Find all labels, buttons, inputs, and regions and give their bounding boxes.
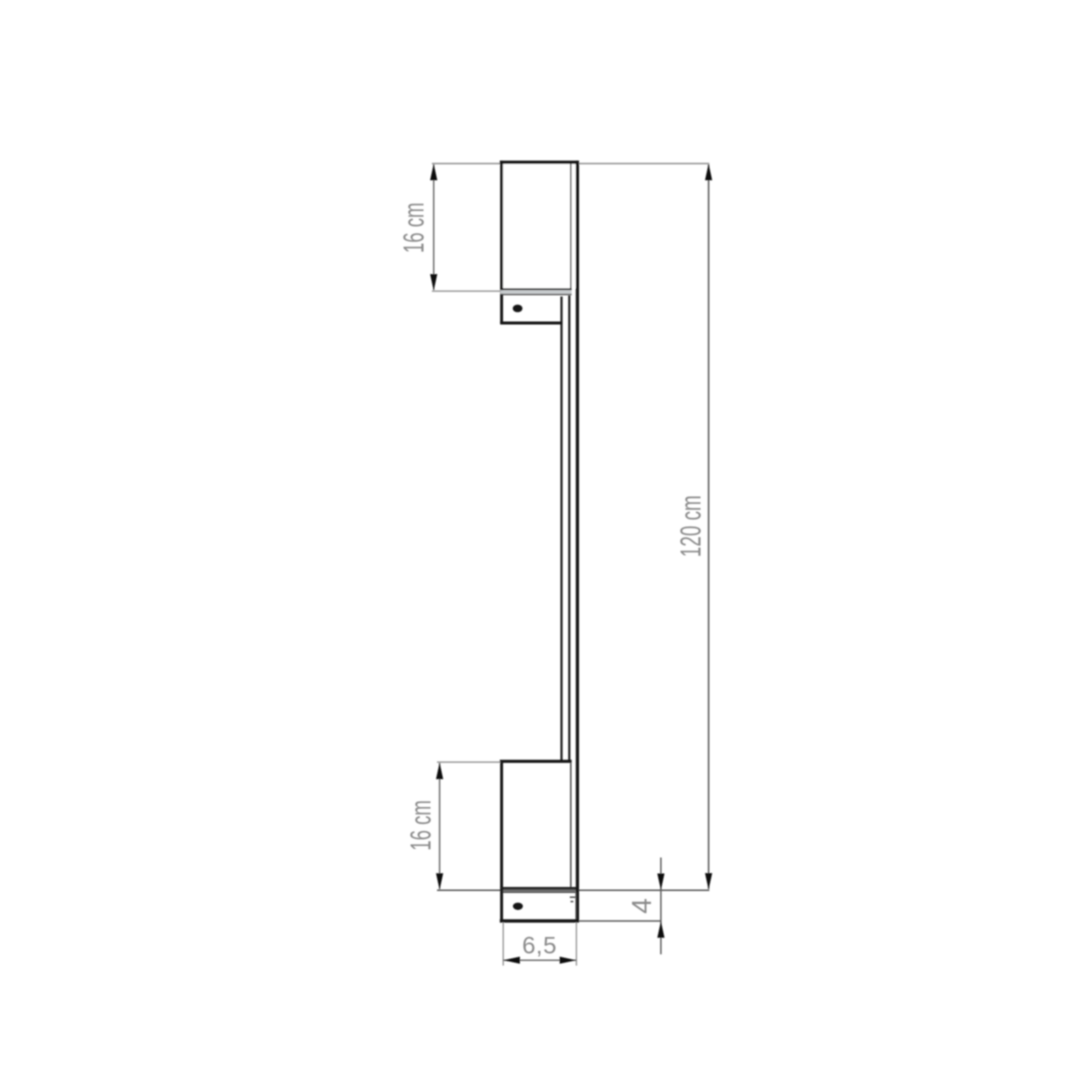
svg-text:6,5: 6,5 [522,933,557,960]
svg-text:16 cm: 16 cm [405,800,437,851]
svg-text:4: 4 [626,898,657,914]
svg-text:16 cm: 16 cm [398,203,430,254]
svg-text:120 cm: 120 cm [676,495,708,557]
